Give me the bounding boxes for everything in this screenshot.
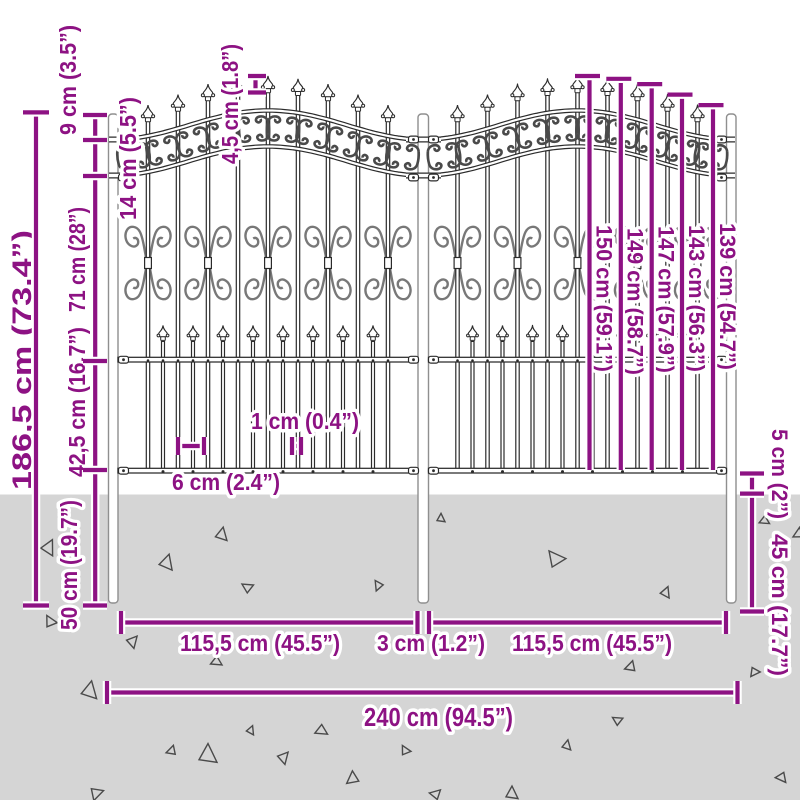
svg-text:50 cm (19.7”): 50 cm (19.7”) bbox=[56, 500, 82, 630]
svg-text:147 cm (57.9”): 147 cm (57.9”) bbox=[654, 226, 679, 373]
svg-text:6 cm (2.4”): 6 cm (2.4”) bbox=[172, 469, 280, 495]
svg-text:71 cm (28”): 71 cm (28”) bbox=[64, 207, 90, 312]
svg-text:143 cm (56.3”): 143 cm (56.3”) bbox=[684, 225, 709, 372]
svg-text:115,5 cm (45.5”): 115,5 cm (45.5”) bbox=[512, 630, 672, 656]
svg-text:14 cm (5.5”): 14 cm (5.5”) bbox=[115, 97, 141, 220]
svg-text:139 cm (54.7”): 139 cm (54.7”) bbox=[715, 223, 740, 370]
svg-text:150 cm (59.1”): 150 cm (59.1”) bbox=[591, 225, 616, 372]
svg-text:4,5 cm (1.8”): 4,5 cm (1.8”) bbox=[217, 44, 243, 164]
svg-text:9 cm (3.5”): 9 cm (3.5”) bbox=[55, 25, 81, 135]
svg-text:149 cm (58.7”): 149 cm (58.7”) bbox=[623, 228, 648, 375]
svg-text:5 cm (2”): 5 cm (2”) bbox=[767, 429, 792, 519]
svg-text:115,5 cm (45.5”): 115,5 cm (45.5”) bbox=[180, 630, 340, 656]
svg-text:45 cm (17.7”): 45 cm (17.7”) bbox=[767, 534, 792, 676]
svg-text:1 cm (0.4”): 1 cm (0.4”) bbox=[251, 408, 359, 434]
svg-text:240 cm (94.5”): 240 cm (94.5”) bbox=[364, 704, 513, 732]
svg-text:42,5 cm (16.7”): 42,5 cm (16.7”) bbox=[64, 327, 90, 477]
